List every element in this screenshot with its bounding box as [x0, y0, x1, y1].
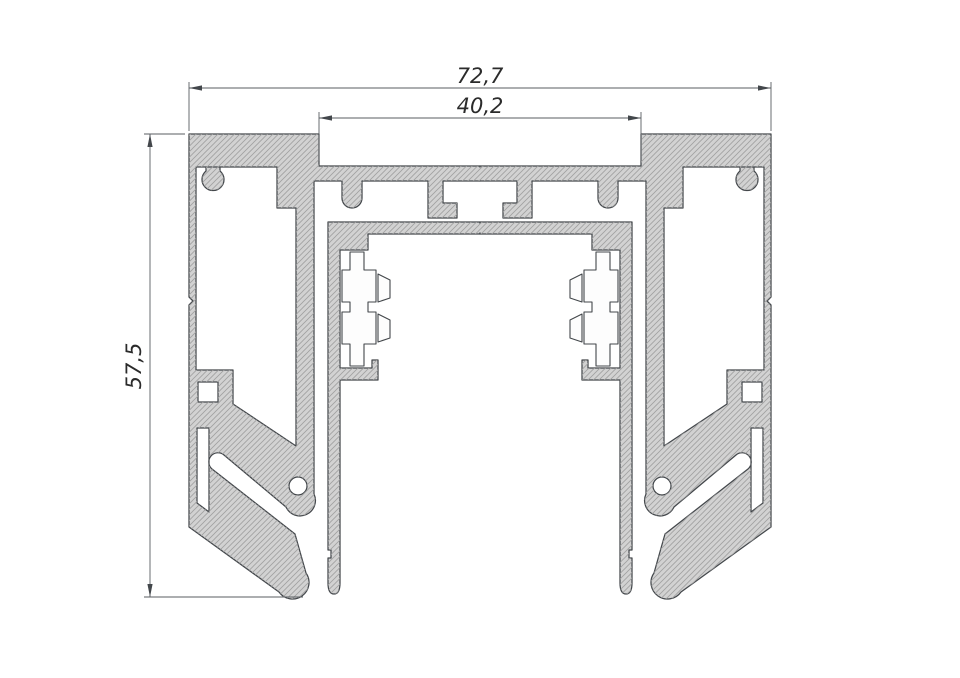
- insert-right: [570, 252, 618, 366]
- dimension-label-inner-width: 40,2: [457, 94, 504, 118]
- dimension-label-height: 57,5: [122, 343, 146, 390]
- arrow-right: [758, 85, 771, 90]
- arrow-left: [319, 115, 332, 120]
- arrow-left: [189, 85, 202, 90]
- dimension-inner-width: 40,2: [319, 94, 641, 161]
- dimension-label-overall-width: 72,7: [457, 64, 504, 88]
- seam-patch-top: [477, 168, 483, 181]
- seam-patch-plate: [477, 224, 483, 233]
- technical-drawing: 72,7 40,2 57,5: [0, 0, 960, 678]
- arrow-top: [147, 134, 152, 147]
- profile-right-half: [480, 134, 771, 599]
- arrow-bottom: [147, 584, 152, 597]
- insert-left: [342, 252, 390, 366]
- arrow-right: [628, 115, 641, 120]
- drawing-canvas: 72,7 40,2 57,5: [0, 0, 960, 678]
- profile-left-half: [189, 134, 480, 599]
